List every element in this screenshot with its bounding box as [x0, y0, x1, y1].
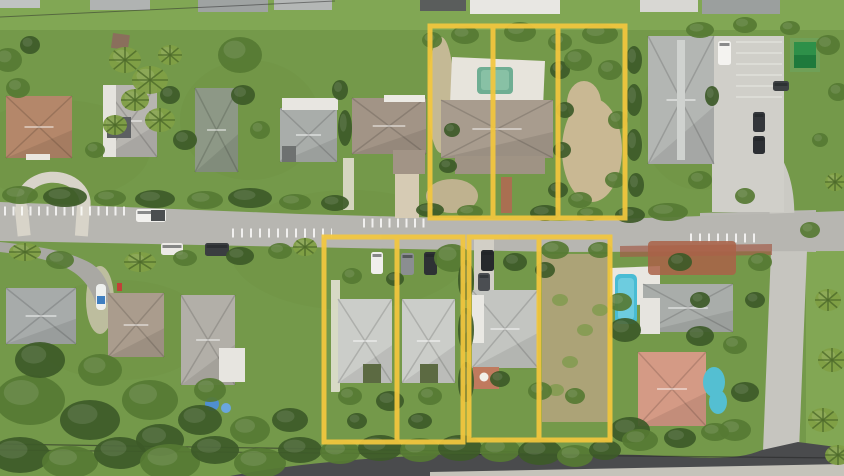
- parked-car-dark: [205, 243, 229, 256]
- tree-highlight: [545, 243, 559, 252]
- tree-highlight: [707, 88, 714, 98]
- patio-umbrella: [480, 373, 489, 382]
- tree-highlight: [571, 194, 583, 202]
- tree-highlight: [241, 451, 267, 466]
- tree-highlight: [4, 380, 39, 405]
- tree-highlight: [524, 442, 546, 455]
- boat-cover: [97, 296, 105, 304]
- tree-highlight: [7, 188, 25, 197]
- se-lot-car-gray-windshield: [480, 275, 489, 278]
- parking-car-white-windshield: [720, 43, 730, 46]
- tree-highlight: [68, 404, 98, 424]
- tree-highlight: [814, 134, 822, 141]
- sport-court-dark-half: [794, 55, 816, 68]
- white-fascia: [384, 95, 425, 102]
- pool-house-wing: [455, 156, 545, 174]
- white-flat-roof: [282, 98, 338, 110]
- dirt-grass-tuft: [577, 324, 593, 336]
- green-gray-roof-house: [195, 88, 238, 172]
- tree-highlight: [628, 87, 636, 103]
- kiddie-pool: [221, 403, 231, 413]
- lot-car-white-windshield: [373, 254, 382, 257]
- tree-highlight: [783, 22, 793, 29]
- tree-highlight: [455, 28, 469, 37]
- red-brick-walk: [501, 177, 512, 213]
- tree-highlight: [736, 19, 748, 27]
- aerial-photo-canvas: [0, 0, 844, 476]
- parked-car-white-windshield: [163, 245, 182, 248]
- duplex-a-courtyard: [363, 364, 381, 383]
- tree-highlight: [234, 87, 246, 97]
- tree-highlight: [230, 249, 244, 258]
- white-roof-section: [640, 298, 660, 334]
- tree-highlight: [140, 192, 160, 201]
- tree-highlight: [668, 430, 684, 440]
- tree-highlight: [580, 208, 593, 215]
- tree-highlight: [88, 144, 98, 152]
- tree-highlight: [568, 390, 578, 398]
- background-roof: [470, 0, 560, 14]
- tree-highlight: [341, 389, 353, 398]
- tree-highlight: [738, 190, 748, 198]
- parked-car-dark-windshield: [207, 245, 228, 248]
- tree-highlight: [23, 38, 33, 47]
- tree-highlight: [50, 253, 64, 262]
- terracotta-patio: [648, 241, 736, 275]
- tree-highlight: [611, 295, 623, 304]
- tree-highlight: [21, 346, 46, 364]
- tree-highlight: [691, 173, 703, 182]
- background-roof: [0, 0, 40, 8]
- building-ridge: [677, 40, 685, 160]
- tree-highlight: [630, 175, 638, 187]
- duplex-b-courtyard: [420, 364, 438, 383]
- taupe-roof-wing: [393, 150, 425, 174]
- tree-highlight: [9, 80, 21, 90]
- tree-highlight: [653, 205, 673, 214]
- salmon-roof-house: [638, 352, 706, 426]
- tree-highlight: [148, 448, 178, 466]
- tree-highlight: [441, 160, 450, 167]
- parking-car-dark-windshield: [755, 114, 764, 117]
- tree-highlight: [345, 270, 355, 278]
- red-equipment: [117, 283, 122, 291]
- tree-highlight: [735, 384, 749, 394]
- tree-highlight: [439, 247, 457, 261]
- taupe-roof-house: [352, 98, 426, 154]
- tree-highlight: [726, 338, 738, 347]
- tree-highlight: [142, 427, 166, 443]
- tree-highlight: [98, 192, 114, 200]
- tree-highlight: [176, 132, 188, 142]
- tree-highlight: [283, 196, 299, 204]
- tree-highlight: [334, 82, 342, 92]
- tree-highlight: [613, 320, 629, 332]
- tree-highlight: [690, 328, 704, 338]
- tree-highlight: [562, 447, 580, 458]
- tree-highlight: [198, 380, 214, 392]
- truck-bed: [151, 210, 165, 221]
- parking-car-dark-windshield: [775, 83, 788, 86]
- sw-gray-house: [6, 288, 76, 344]
- dirt-grass-tuft: [592, 304, 608, 316]
- tree-highlight: [608, 174, 618, 182]
- tree-highlight: [224, 41, 246, 59]
- dirt-grass-tuft: [562, 356, 578, 368]
- taupe-roof-wing-roof: [393, 150, 425, 174]
- dirt-grass-tuft: [552, 294, 568, 306]
- tree-highlight: [591, 244, 603, 252]
- tree-highlight: [184, 408, 206, 423]
- tree-highlight: [192, 193, 210, 202]
- tree-highlight: [411, 415, 423, 423]
- tree-highlight: [627, 431, 645, 442]
- se-lot-car-black-windshield: [483, 252, 493, 255]
- pool-house-wing-roof: [455, 156, 545, 174]
- front-driveway: [395, 174, 419, 218]
- lot-car-black-windshield: [426, 254, 436, 257]
- background-roof: [420, 0, 466, 11]
- tree-highlight: [235, 419, 255, 433]
- tree-highlight: [101, 440, 127, 456]
- tree-highlight: [705, 425, 719, 434]
- white-garage-roof: [219, 348, 245, 382]
- background-roof: [640, 0, 698, 12]
- tree-highlight: [803, 224, 813, 232]
- tan-roof-house: [6, 96, 72, 158]
- tree-highlight: [129, 384, 157, 404]
- sw-taupe-house: [108, 293, 164, 357]
- tree-highlight: [628, 49, 636, 63]
- tree-highlight: [271, 245, 283, 253]
- tree-highlight: [690, 24, 704, 32]
- tree-highlight: [284, 440, 306, 453]
- tree-highlight: [751, 255, 763, 264]
- tree-highlight: [421, 389, 433, 398]
- background-roof: [90, 0, 150, 10]
- porch: [26, 154, 50, 160]
- tree-highlight: [197, 439, 221, 453]
- lot-car-gray-windshield: [403, 255, 413, 258]
- tree-highlight: [460, 206, 473, 213]
- tree-highlight: [671, 255, 683, 264]
- tree-highlight: [176, 252, 188, 260]
- garage-white-roof: [472, 295, 484, 343]
- background-roof: [702, 0, 780, 14]
- shed: [282, 146, 296, 162]
- tree-highlight: [819, 37, 831, 47]
- tree-highlight: [163, 88, 173, 97]
- tree-highlight: [446, 124, 454, 131]
- tree-highlight: [593, 442, 609, 452]
- tree-highlight: [253, 123, 263, 132]
- tree-highlight: [49, 189, 71, 199]
- tree-highlight: [380, 393, 394, 403]
- tree-highlight: [340, 114, 347, 132]
- tree-highlight: [831, 85, 841, 94]
- tree-highlight: [611, 113, 621, 122]
- tree-highlight: [277, 410, 295, 422]
- tree-highlight: [748, 294, 758, 302]
- tree-highlight: [49, 449, 77, 465]
- tree-highlight: [534, 207, 549, 215]
- tree-highlight: [350, 415, 360, 423]
- tree-highlight: [84, 357, 106, 373]
- aerial-photo: [0, 0, 844, 476]
- parking-car-dark-windshield: [755, 138, 764, 141]
- tree-highlight: [568, 51, 582, 62]
- kidney-pool: [709, 390, 727, 414]
- tree-highlight: [693, 294, 703, 302]
- tree-highlight: [325, 197, 339, 205]
- vacant-lot-sand: [567, 81, 601, 125]
- tree-highlight: [601, 62, 613, 72]
- tree-highlight: [493, 373, 503, 381]
- tree-highlight: [628, 132, 636, 148]
- tree-highlight: [506, 255, 518, 264]
- tree-highlight: [234, 190, 256, 200]
